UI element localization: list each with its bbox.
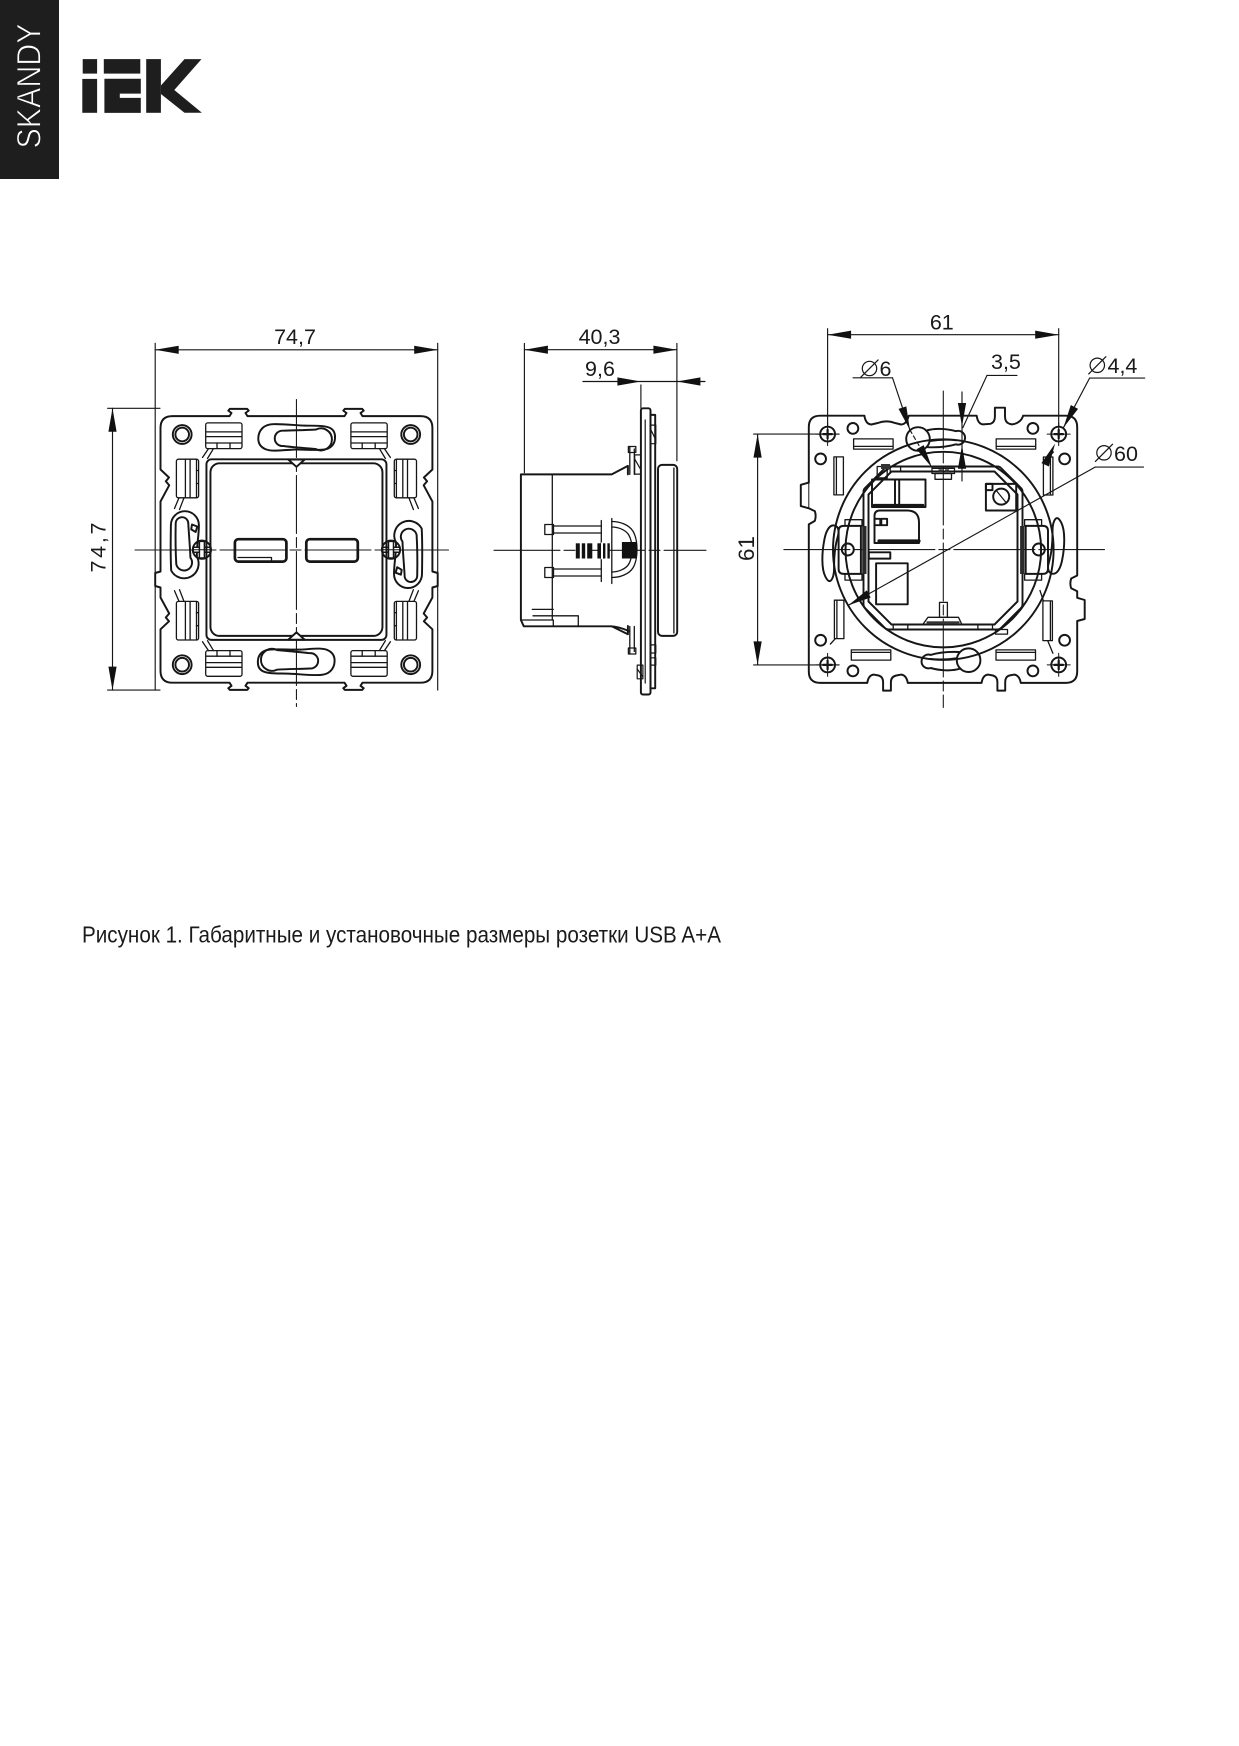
svg-text:9,6: 9,6 [585,357,615,381]
svg-text:Рисунок 1. Габаритные и устано: Рисунок 1. Габаритные и установочные раз… [82,922,722,948]
svg-text:4,4: 4,4 [1108,354,1138,378]
svg-text:61: 61 [734,536,759,561]
svg-text:40,3: 40,3 [579,325,621,349]
svg-text:61: 61 [930,311,954,335]
svg-text:74,7: 74,7 [274,325,316,349]
svg-text:74,7: 74,7 [87,523,111,573]
svg-text:3,5: 3,5 [991,350,1021,374]
svg-text:60: 60 [1114,442,1138,466]
svg-text:SKANDY: SKANDY [11,24,49,149]
